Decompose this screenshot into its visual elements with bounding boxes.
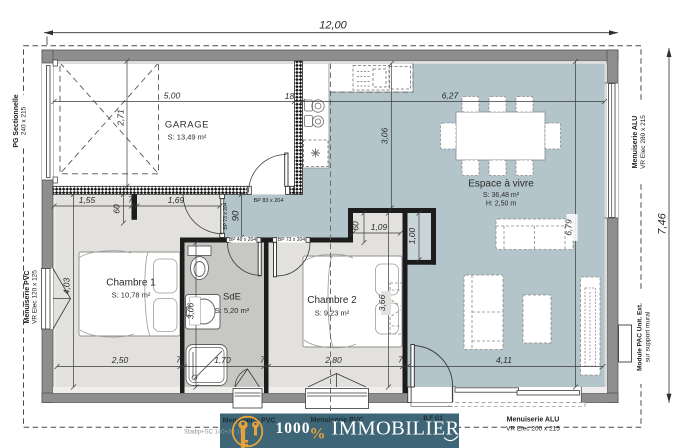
svg-text:1,69: 1,69 [168, 195, 185, 205]
svg-text:7,46: 7,46 [657, 212, 669, 234]
svg-text:7: 7 [260, 355, 265, 365]
svg-text:3,06: 3,06 [186, 302, 196, 319]
svg-text:BP 73 x 204: BP 73 x 204 [223, 202, 229, 229]
svg-text:VR Elec 120 x 125: VR Elec 120 x 125 [32, 270, 39, 324]
svg-text:BP 73 x 204: BP 73 x 204 [278, 237, 305, 243]
svg-text:VR Elec 280 x 215: VR Elec 280 x 215 [640, 115, 647, 169]
svg-text:90: 90 [231, 210, 242, 221]
svg-text:H: 2,50 m: H: 2,50 m [486, 201, 517, 208]
svg-text:BP 49 x 204: BP 49 x 204 [229, 237, 256, 243]
svg-text:1,70: 1,70 [214, 355, 231, 365]
svg-text:S: 9,23 m²: S: 9,23 m² [315, 309, 350, 318]
svg-text:Menuiserie PVC: Menuiserie PVC [223, 418, 276, 425]
svg-text:7: 7 [128, 195, 133, 205]
svg-text:S: 10,78 m²: S: 10,78 m² [112, 291, 151, 300]
svg-text:sur support mural: sur support mural [645, 311, 652, 362]
svg-text:2,50: 2,50 [111, 355, 129, 365]
svg-text:6,27: 6,27 [442, 91, 459, 101]
svg-text:S: 36,48 m²: S: 36,48 m² [483, 192, 520, 199]
svg-text:Menuiserie ALU: Menuiserie ALU [632, 116, 639, 169]
svg-text:S: 5,20 m²: S: 5,20 m² [215, 306, 250, 315]
svg-text:1,09: 1,09 [371, 222, 388, 232]
svg-text:60: 60 [351, 221, 361, 231]
svg-text:BP 83 x 204: BP 83 x 204 [254, 198, 284, 204]
svg-text:5,00: 5,00 [164, 91, 181, 101]
svg-text:60: 60 [112, 204, 122, 214]
svg-text:12,00: 12,00 [319, 20, 347, 32]
svg-text:2,80: 2,80 [324, 355, 342, 365]
svg-text:240 x 215: 240 x 215 [21, 106, 28, 135]
svg-text:Menuiserie PVC: Menuiserie PVC [24, 271, 31, 324]
svg-text:Menuiserie ALU: Menuiserie ALU [507, 417, 560, 424]
svg-text:3,66: 3,66 [377, 294, 387, 311]
svg-text:VR Elec 200 x 215: VR Elec 200 x 215 [506, 426, 560, 433]
svg-text:Chambre 2: Chambre 2 [307, 295, 357, 306]
svg-text:1000: 1000 [276, 420, 311, 437]
svg-text:6,79: 6,79 [564, 219, 574, 236]
svg-text:Espace à vivre: Espace à vivre [468, 179, 534, 190]
svg-text:18: 18 [285, 91, 295, 101]
svg-text:Stadip+SC 140+30 10...: Stadip+SC 140+30 10... [184, 430, 248, 436]
svg-text:7: 7 [398, 355, 403, 365]
svg-text:Chambre 1: Chambre 1 [106, 278, 156, 289]
svg-text:SdE: SdE [223, 292, 241, 303]
svg-text:1,55: 1,55 [79, 195, 96, 205]
svg-text:Module PAC Unit. Ext.: Module PAC Unit. Ext. [637, 303, 644, 371]
svg-text:4,11: 4,11 [496, 355, 512, 365]
svg-text:IMMOBILIER: IMMOBILIER [332, 418, 460, 440]
svg-text:S: 13,49 m²: S: 13,49 m² [168, 133, 207, 142]
svg-text:2,71: 2,71 [116, 109, 126, 127]
svg-text:GARAGE: GARAGE [165, 120, 209, 131]
svg-text:%: % [310, 426, 326, 443]
svg-text:4,03: 4,03 [62, 277, 72, 294]
svg-text:7: 7 [176, 355, 181, 365]
svg-text:1,00: 1,00 [407, 227, 417, 244]
svg-text:3,06: 3,06 [380, 127, 390, 144]
svg-text:PG Sectionnelle: PG Sectionnelle [13, 94, 20, 147]
